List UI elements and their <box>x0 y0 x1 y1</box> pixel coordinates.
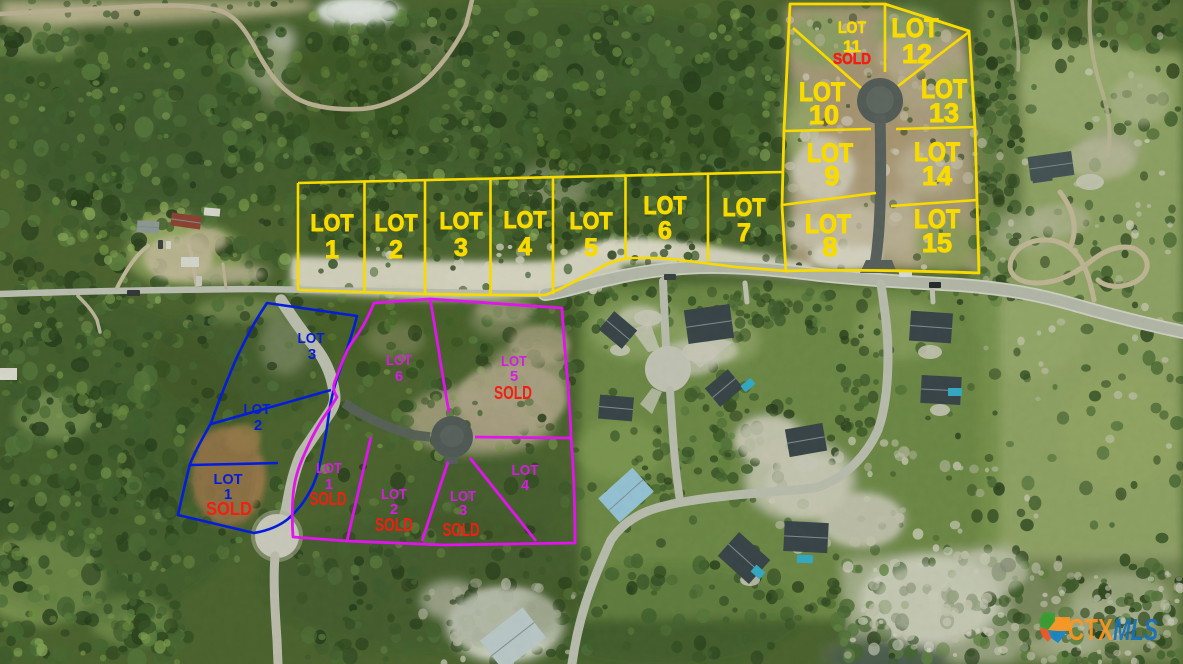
svg-text:LOT: LOT <box>723 194 766 222</box>
svg-text:9: 9 <box>824 161 839 191</box>
svg-text:2: 2 <box>389 236 403 264</box>
svg-text:SOLD: SOLD <box>310 489 347 509</box>
svg-text:LOT: LOT <box>644 192 687 220</box>
svg-text:LOT: LOT <box>311 210 354 237</box>
svg-text:LOT: LOT <box>316 460 342 477</box>
svg-text:4: 4 <box>521 477 530 494</box>
svg-text:LOT: LOT <box>375 210 418 237</box>
svg-text:6: 6 <box>395 368 403 385</box>
svg-text:1: 1 <box>325 236 339 264</box>
svg-text:LOT: LOT <box>504 207 547 234</box>
svg-text:SOLD: SOLD <box>375 515 413 535</box>
svg-text:3: 3 <box>308 346 316 363</box>
svg-text:14: 14 <box>922 161 952 191</box>
svg-text:7: 7 <box>737 219 751 247</box>
svg-text:SOLD: SOLD <box>494 383 532 403</box>
svg-text:15: 15 <box>922 228 952 258</box>
svg-text:CTX: CTX <box>1068 612 1113 647</box>
svg-text:6: 6 <box>658 217 672 245</box>
svg-text:LOT: LOT <box>570 208 613 235</box>
svg-text:LOT: LOT <box>838 18 867 37</box>
svg-text:4: 4 <box>518 233 532 261</box>
svg-text:MLS: MLS <box>1113 612 1158 647</box>
svg-text:10: 10 <box>809 100 839 130</box>
svg-text:SOLD: SOLD <box>443 520 480 540</box>
svg-text:2: 2 <box>254 417 262 434</box>
svg-text:LOT: LOT <box>386 352 412 369</box>
svg-text:13: 13 <box>929 98 959 128</box>
svg-text:3: 3 <box>454 234 468 262</box>
svg-text:8: 8 <box>822 232 837 262</box>
svg-text:SOLD: SOLD <box>206 499 252 519</box>
svg-text:5: 5 <box>584 234 598 262</box>
svg-text:12: 12 <box>902 39 932 69</box>
svg-text:LOT: LOT <box>440 208 483 235</box>
svg-text:LOT: LOT <box>298 330 325 347</box>
svg-text:LOT: LOT <box>244 401 271 418</box>
svg-text:SOLD: SOLD <box>833 51 871 68</box>
svg-text:3: 3 <box>459 502 467 519</box>
